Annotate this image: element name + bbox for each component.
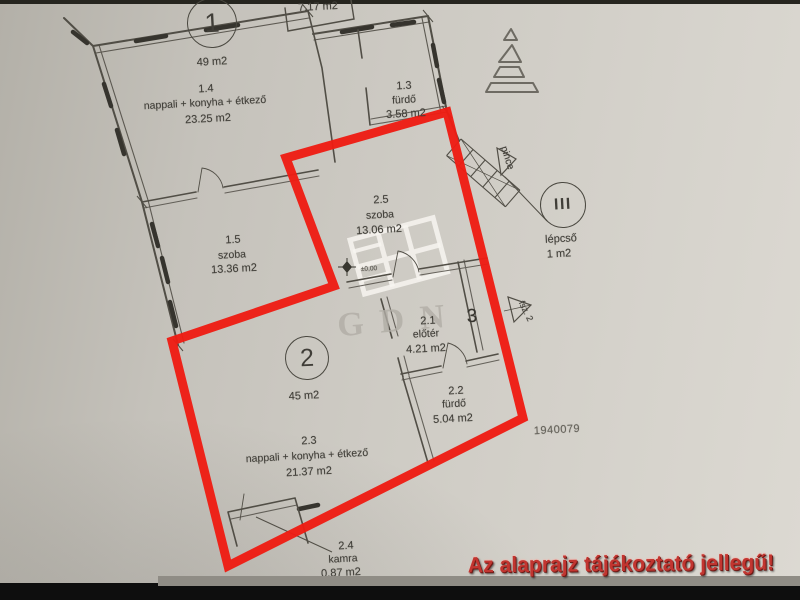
room-2-5-area: 13.06 m2: [356, 223, 402, 237]
disclaimer-stamp: Az alaprajz tájékoztató jellegű!: [450, 547, 792, 580]
position-number: 3: [466, 306, 478, 329]
room-1-4-id: 1.4: [198, 83, 214, 96]
room-1-4-area: 23.25 m2: [185, 112, 231, 126]
room-1-3-area: 3.58 m2: [386, 107, 426, 121]
unit-2-total-area: 45 m2: [288, 389, 319, 403]
room-1-5-name: szoba: [218, 248, 247, 261]
scanned-floorplan-photo: GDN 1 2 III 49 m2 45 m2 1.4 nappali + ko…: [0, 0, 800, 600]
partial-area-label: 7.17 m2: [298, 0, 338, 14]
room-2-2-name: fürdő: [442, 397, 467, 410]
room-1-3-id: 1.3: [396, 80, 412, 93]
room-2-2-area: 5.04 m2: [433, 412, 473, 426]
stairwell-area: 1 m2: [546, 247, 571, 260]
room-2-1-id: 2.1: [420, 315, 436, 328]
room-2-4-name: kamra: [328, 552, 358, 566]
room-1-5-area: 13.36 m2: [211, 262, 257, 276]
room-2-5-id: 2.5: [373, 194, 389, 207]
elevation-label: ±0,00: [361, 265, 378, 273]
room-1-3-name: fürdő: [392, 93, 417, 106]
room-2-3-area: 21.37 m2: [286, 465, 332, 479]
room-2-2-id: 2.2: [448, 385, 464, 398]
room-2-1-area: 4.21 m2: [406, 342, 446, 356]
room-2-1-name: előtér: [413, 327, 440, 340]
room-1-5-id: 1.5: [225, 234, 241, 247]
plan-number: 1940079: [534, 423, 581, 437]
room-2-3-id: 2.3: [301, 435, 317, 448]
unit-1-total-area: 49 m2: [196, 55, 227, 69]
room-2-4-id: 2.4: [338, 540, 354, 553]
stairwell-name: lépcső: [545, 232, 577, 246]
north-icon: [486, 29, 538, 92]
room-2-5-name: szoba: [366, 208, 395, 221]
outer-walls: [64, 11, 459, 345]
